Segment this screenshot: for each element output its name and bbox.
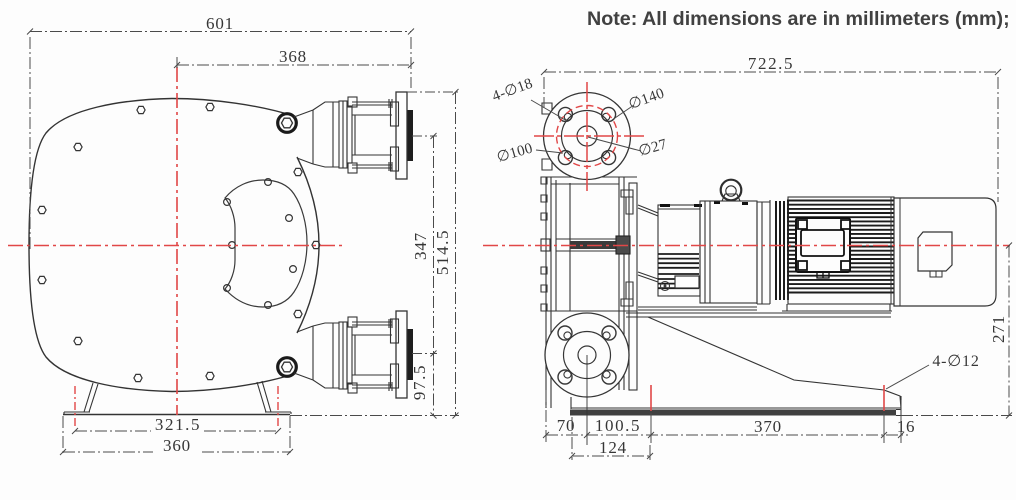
svg-text:347: 347 (411, 232, 430, 260)
svg-text:124: 124 (599, 438, 627, 457)
svg-text:4-∅12: 4-∅12 (932, 353, 979, 370)
svg-text:97.5: 97.5 (410, 364, 429, 400)
svg-text:70: 70 (557, 416, 576, 435)
svg-text:360: 360 (163, 436, 191, 455)
svg-text:722.5: 722.5 (748, 54, 794, 73)
svg-text:∅100: ∅100 (495, 140, 535, 166)
svg-text:Note: All dimensions are in mi: Note: All dimensions are in millimeters … (587, 8, 1010, 30)
svg-text:271: 271 (989, 315, 1008, 343)
svg-text:370: 370 (754, 417, 782, 436)
svg-text:321.5: 321.5 (155, 415, 201, 434)
svg-text:16: 16 (897, 417, 916, 436)
svg-text:∅140: ∅140 (627, 85, 667, 113)
svg-text:368: 368 (279, 47, 307, 66)
svg-text:514.5: 514.5 (433, 229, 452, 275)
svg-text:100.5: 100.5 (595, 416, 641, 435)
svg-text:601: 601 (206, 14, 234, 33)
svg-text:4-∅18: 4-∅18 (490, 76, 535, 105)
svg-text:∅27: ∅27 (637, 136, 669, 159)
